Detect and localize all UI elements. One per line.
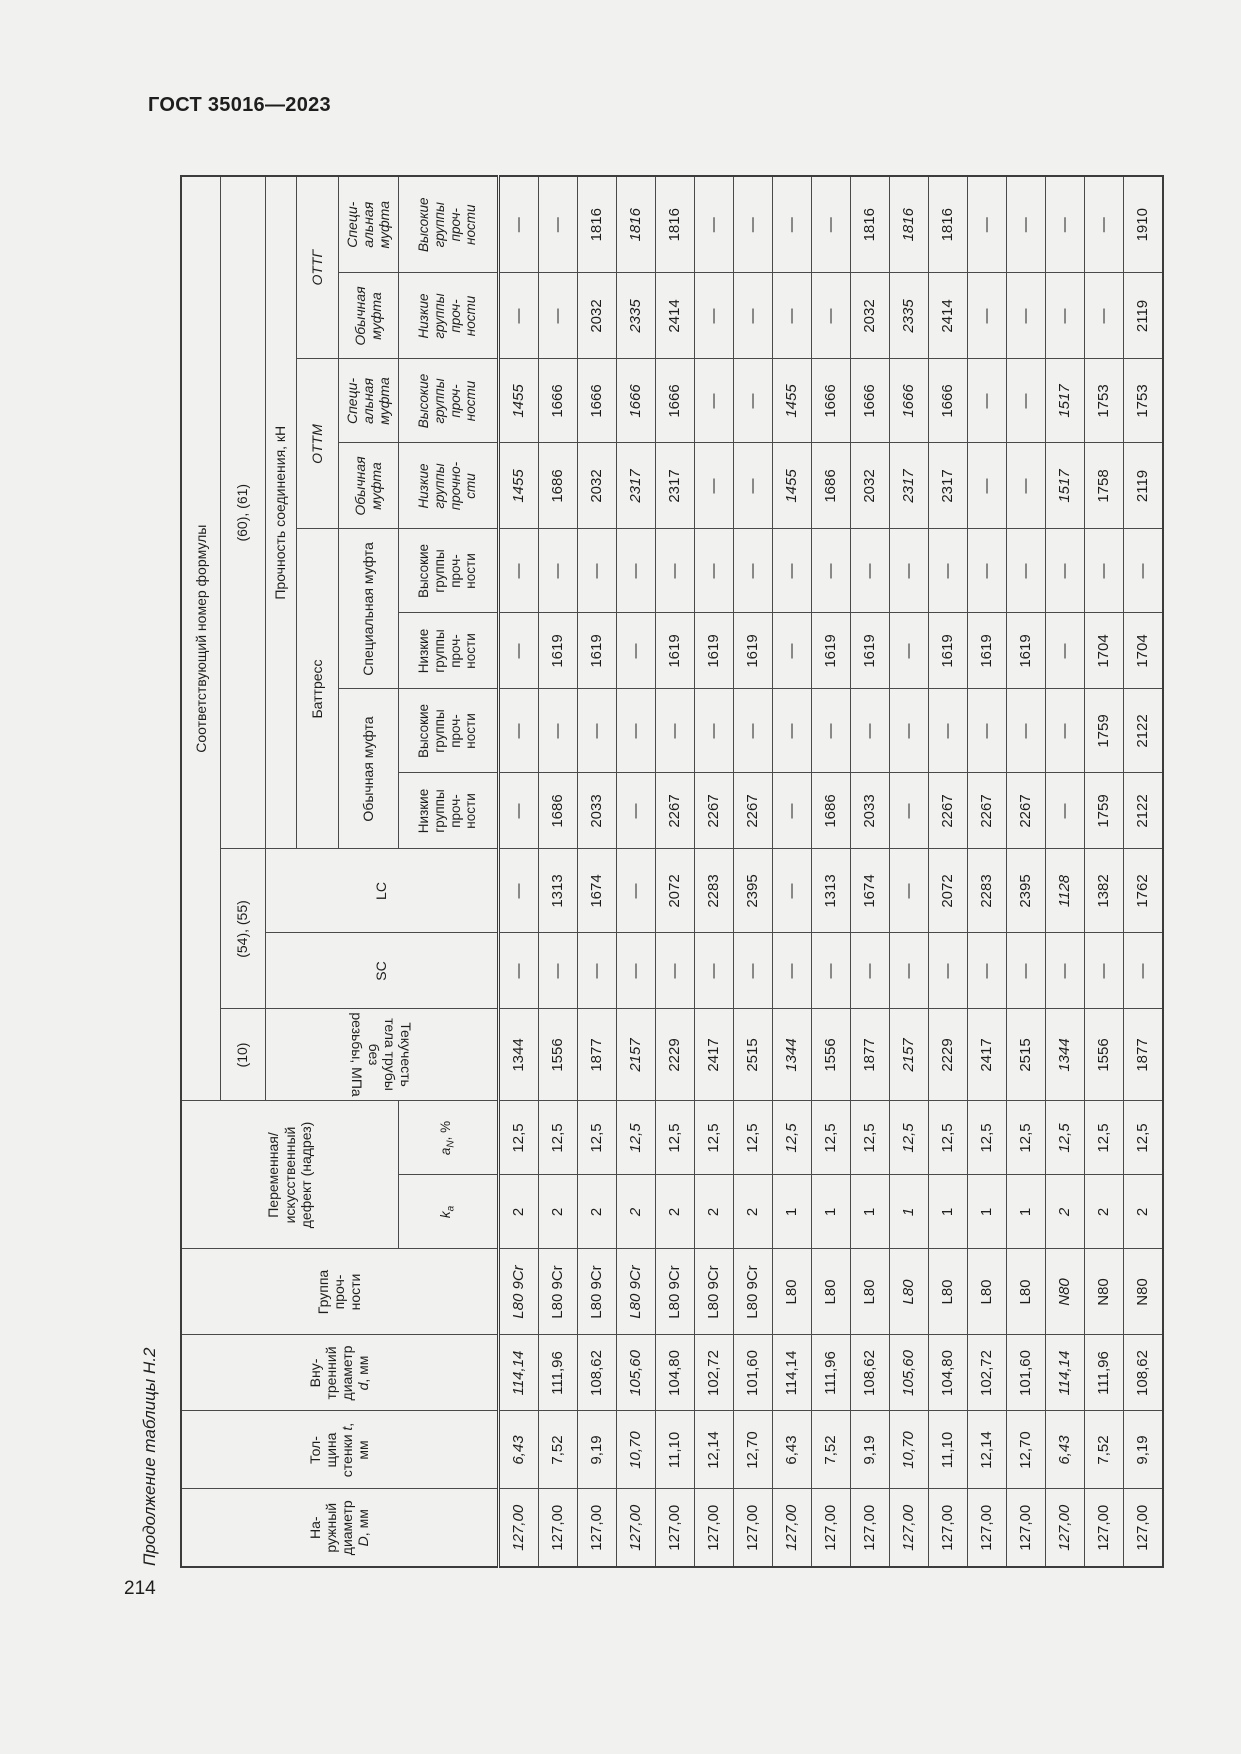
cell-buttress-special-low: 1619: [694, 613, 733, 689]
cell-lc: —: [889, 849, 928, 933]
group-header-ottm-special-coupling: Специ- альная муфта: [338, 359, 398, 443]
cell-strength-grade: N80: [1045, 1249, 1084, 1335]
cell-buttress-usual-low: —: [498, 773, 538, 849]
cell-lc: 1674: [850, 849, 889, 933]
cell-buttress-usual-low: 2122: [1123, 773, 1163, 849]
cell-buttress-usual-low: 2033: [850, 773, 889, 849]
cell-ka: 2: [616, 1175, 655, 1249]
cell-ka: 1: [772, 1175, 811, 1249]
cell-lc: 1382: [1084, 849, 1123, 933]
table-caption: Продолжение таблицы Н.2: [140, 177, 167, 1568]
cell-outer-diameter: 127,00: [733, 1489, 772, 1567]
table-row: 127,009,19108,62L80 9Cr212,51877—1674203…: [577, 176, 616, 1567]
cell-ottg-special: —: [733, 176, 772, 273]
table-row: 127,0011,10104,80L80 9Cr212,52229—207222…: [655, 176, 694, 1567]
cell-ottm-special: 1666: [811, 359, 850, 443]
group-header-defect: Переменная/ искусственный дефект (надрез…: [181, 1101, 398, 1249]
cell-buttress-usual-high: —: [655, 689, 694, 773]
cell-an: 12,5: [694, 1101, 733, 1175]
cell-wall-thickness: 11,10: [655, 1411, 694, 1489]
cell-ottg-usual: 2414: [928, 273, 967, 359]
cell-buttress-usual-low: 2267: [694, 773, 733, 849]
cell-lc: 1313: [538, 849, 577, 933]
cell-sc: —: [772, 933, 811, 1009]
cell-inner-diameter: 102,72: [967, 1335, 1006, 1411]
cell-ottg-special: —: [498, 176, 538, 273]
cell-strength-grade: N80: [1084, 1249, 1123, 1335]
cell-sc: —: [850, 933, 889, 1009]
cell-ottm-usual: 1758: [1084, 443, 1123, 529]
cell-wall-thickness: 12,14: [694, 1411, 733, 1489]
cell-ottm-special: 1666: [928, 359, 967, 443]
cell-inner-diameter: 114,14: [772, 1335, 811, 1411]
cell-lc: 2283: [694, 849, 733, 933]
cell-buttress-usual-low: 1686: [811, 773, 850, 849]
group-header-joint-strength: Прочность соединения, кН: [265, 176, 296, 849]
cell-ka: 2: [733, 1175, 772, 1249]
cell-buttress-usual-high: —: [577, 689, 616, 773]
cell-an: 12,5: [811, 1101, 850, 1175]
cell-buttress-special-low: —: [498, 613, 538, 689]
cell-an: 12,5: [850, 1101, 889, 1175]
cell-buttress-usual-high: —: [928, 689, 967, 773]
cell-wall-thickness: 12,14: [967, 1411, 1006, 1489]
cell-ottm-special: —: [967, 359, 1006, 443]
cell-pipe-body-yield: 1877: [1123, 1009, 1163, 1101]
cell-strength-grade: L80: [967, 1249, 1006, 1335]
cell-buttress-special-low: —: [1045, 613, 1084, 689]
cell-an: 12,5: [772, 1101, 811, 1175]
cell-lc: 1128: [1045, 849, 1084, 933]
cell-strength-grade: L80 9Cr: [577, 1249, 616, 1335]
cell-buttress-special-high: —: [733, 529, 772, 613]
col-header-buttress-usual-high: Высокие группы проч- ности: [398, 689, 498, 773]
cell-sc: —: [694, 933, 733, 1009]
cell-outer-diameter: 127,00: [1123, 1489, 1163, 1567]
table-row: 127,007,52111,96L80112,51556—13131686—16…: [811, 176, 850, 1567]
cell-ottm-usual: —: [733, 443, 772, 529]
cell-wall-thickness: 6,43: [498, 1411, 538, 1489]
cell-outer-diameter: 127,00: [655, 1489, 694, 1567]
cell-pipe-body-yield: 1344: [1045, 1009, 1084, 1101]
cell-ka: 2: [655, 1175, 694, 1249]
cell-ottg-usual: 2414: [655, 273, 694, 359]
cell-buttress-usual-high: —: [772, 689, 811, 773]
cell-buttress-usual-low: —: [772, 773, 811, 849]
table-row: 127,0011,10104,80L80112,52229—20722267—1…: [928, 176, 967, 1567]
cell-buttress-usual-high: 2122: [1123, 689, 1163, 773]
cell-ottm-usual: 1455: [498, 443, 538, 529]
cell-wall-thickness: 7,52: [1084, 1411, 1123, 1489]
cell-ottg-usual: 2119: [1123, 273, 1163, 359]
group-header-ottg: ОТТГ: [296, 176, 338, 359]
page-number: 214: [124, 1578, 156, 1600]
cell-wall-thickness: 6,43: [1045, 1411, 1084, 1489]
cell-lc: 2395: [733, 849, 772, 933]
cell-outer-diameter: 127,00: [616, 1489, 655, 1567]
cell-buttress-usual-low: 1759: [1084, 773, 1123, 849]
cell-ka: 2: [498, 1175, 538, 1249]
cell-strength-grade: L80: [850, 1249, 889, 1335]
cell-ottg-special: 1816: [616, 176, 655, 273]
cell-inner-diameter: 108,62: [577, 1335, 616, 1411]
cell-ottg-usual: 2335: [889, 273, 928, 359]
cell-inner-diameter: 111,96: [1084, 1335, 1123, 1411]
cell-ottm-usual: 2317: [655, 443, 694, 529]
cell-strength-grade: L80: [889, 1249, 928, 1335]
cell-ottg-usual: —: [733, 273, 772, 359]
cell-lc: 2072: [928, 849, 967, 933]
cell-lc: 1313: [811, 849, 850, 933]
col-header-ottm-usual-low: Низкие группы прочно- сти: [398, 443, 498, 529]
cell-sc: —: [538, 933, 577, 1009]
cell-sc: —: [733, 933, 772, 1009]
cell-wall-thickness: 9,19: [1123, 1411, 1163, 1489]
cell-pipe-body-yield: 2417: [694, 1009, 733, 1101]
cell-strength-grade: L80 9Cr: [538, 1249, 577, 1335]
cell-buttress-special-low: 1619: [811, 613, 850, 689]
cell-inner-diameter: 102,72: [694, 1335, 733, 1411]
cell-sc: —: [889, 933, 928, 1009]
cell-sc: —: [498, 933, 538, 1009]
cell-strength-grade: L80: [1006, 1249, 1045, 1335]
cell-pipe-body-yield: 2229: [655, 1009, 694, 1101]
cell-buttress-usual-low: 2267: [967, 773, 1006, 849]
cell-ka: 2: [577, 1175, 616, 1249]
cell-ottm-special: 1753: [1084, 359, 1123, 443]
cell-ottm-usual: 1686: [811, 443, 850, 529]
cell-ottm-special: 1455: [498, 359, 538, 443]
table-row: 127,006,43114,14L80112,51344——————145514…: [772, 176, 811, 1567]
cell-strength-grade: L80 9Cr: [694, 1249, 733, 1335]
cell-ka: 1: [1006, 1175, 1045, 1249]
cell-buttress-usual-high: —: [616, 689, 655, 773]
cell-buttress-usual-high: —: [694, 689, 733, 773]
cell-ottm-usual: 2119: [1123, 443, 1163, 529]
group-header-ottm-usual-coupling: Обычная муфта: [338, 443, 398, 529]
cell-outer-diameter: 127,00: [772, 1489, 811, 1567]
col-header-lc: LC: [265, 849, 498, 933]
standard-number: ГОСТ 35016—2023: [148, 94, 331, 117]
cell-buttress-special-high: —: [811, 529, 850, 613]
col-header-buttress-usual-low: Низкие группы проч- ности: [398, 773, 498, 849]
cell-ottm-usual: 2317: [616, 443, 655, 529]
cell-inner-diameter: 104,80: [928, 1335, 967, 1411]
cell-inner-diameter: 101,60: [733, 1335, 772, 1411]
cell-ottg-special: —: [811, 176, 850, 273]
cell-buttress-special-low: —: [889, 613, 928, 689]
cell-buttress-special-high: —: [772, 529, 811, 613]
cell-strength-grade: N80: [1123, 1249, 1163, 1335]
cell-ottg-special: 1816: [889, 176, 928, 273]
cell-sc: —: [1084, 933, 1123, 1009]
cell-ottm-special: 1666: [616, 359, 655, 443]
cell-buttress-usual-low: 2033: [577, 773, 616, 849]
cell-wall-thickness: 10,70: [616, 1411, 655, 1489]
cell-inner-diameter: 101,60: [1006, 1335, 1045, 1411]
cell-ottg-special: —: [772, 176, 811, 273]
cell-pipe-body-yield: 2417: [967, 1009, 1006, 1101]
cell-ka: 1: [928, 1175, 967, 1249]
cell-buttress-special-high: —: [889, 529, 928, 613]
cell-ottg-special: —: [694, 176, 733, 273]
cell-pipe-body-yield: 1344: [498, 1009, 538, 1101]
col-header-an: aN, %: [398, 1101, 498, 1175]
formula-54-55: (54), (55): [220, 849, 265, 1009]
cell-buttress-special-high: —: [538, 529, 577, 613]
cell-buttress-special-low: 1619: [577, 613, 616, 689]
cell-strength-grade: L80 9Cr: [498, 1249, 538, 1335]
cell-ottg-usual: —: [967, 273, 1006, 359]
col-header-buttress-special-high: Высокие группы проч- ности: [398, 529, 498, 613]
cell-ka: 2: [694, 1175, 733, 1249]
cell-wall-thickness: 12,70: [733, 1411, 772, 1489]
cell-lc: 2283: [967, 849, 1006, 933]
cell-buttress-usual-high: —: [538, 689, 577, 773]
cell-lc: —: [498, 849, 538, 933]
cell-buttress-usual-high: —: [498, 689, 538, 773]
cell-ottm-usual: —: [1006, 443, 1045, 529]
cell-an: 12,5: [498, 1101, 538, 1175]
cell-buttress-special-low: 1619: [928, 613, 967, 689]
cell-ottg-usual: 2335: [616, 273, 655, 359]
cell-inner-diameter: 105,60: [616, 1335, 655, 1411]
cell-ottg-special: —: [1084, 176, 1123, 273]
cell-strength-grade: L80 9Cr: [616, 1249, 655, 1335]
cell-an: 12,5: [577, 1101, 616, 1175]
cell-ka: 2: [1123, 1175, 1163, 1249]
formula-60-61: (60), (61): [220, 176, 265, 849]
cell-buttress-special-high: —: [1006, 529, 1045, 613]
cell-buttress-special-high: —: [655, 529, 694, 613]
cell-ottm-special: 1666: [577, 359, 616, 443]
cell-ka: 1: [850, 1175, 889, 1249]
cell-wall-thickness: 9,19: [850, 1411, 889, 1489]
cell-buttress-special-high: —: [928, 529, 967, 613]
cell-lc: —: [772, 849, 811, 933]
cell-outer-diameter: 127,00: [498, 1489, 538, 1567]
cell-strength-grade: L80: [772, 1249, 811, 1335]
cell-buttress-special-high: —: [498, 529, 538, 613]
cell-an: 12,5: [1084, 1101, 1123, 1175]
table-row: 127,007,52111,96L80 9Cr212,51556—1313168…: [538, 176, 577, 1567]
cell-ottm-special: —: [694, 359, 733, 443]
cell-ottg-usual: —: [772, 273, 811, 359]
cell-buttress-special-high: —: [577, 529, 616, 613]
group-header-ottg-usual-coupling: Обычная муфта: [338, 273, 398, 359]
cell-ottg-special: —: [1006, 176, 1045, 273]
cell-outer-diameter: 127,00: [967, 1489, 1006, 1567]
cell-ottg-special: —: [967, 176, 1006, 273]
group-header-buttress-special-coupling: Специальная муфта: [338, 529, 398, 689]
cell-ottg-usual: —: [1084, 273, 1123, 359]
cell-outer-diameter: 127,00: [928, 1489, 967, 1567]
table-body: 127,006,43114,14L80 9Cr212,51344——————14…: [498, 176, 1163, 1567]
cell-pipe-body-yield: 1877: [850, 1009, 889, 1101]
cell-buttress-special-high: —: [694, 529, 733, 613]
formula-10: (10): [220, 1009, 265, 1101]
col-header-strength-grade: Группа проч- ности: [181, 1249, 498, 1335]
cell-inner-diameter: 108,62: [850, 1335, 889, 1411]
cell-sc: —: [967, 933, 1006, 1009]
cell-ka: 2: [538, 1175, 577, 1249]
cell-buttress-special-low: 1619: [655, 613, 694, 689]
cell-ottm-usual: —: [967, 443, 1006, 529]
cell-pipe-body-yield: 2515: [733, 1009, 772, 1101]
cell-strength-grade: L80: [811, 1249, 850, 1335]
table-normal-orientation: Продолжение таблицы Н.2 На- ружный диаме…: [140, 177, 1153, 1568]
cell-ottg-usual: —: [1006, 273, 1045, 359]
cell-ottg-usual: 2032: [577, 273, 616, 359]
cell-inner-diameter: 114,14: [1045, 1335, 1084, 1411]
group-header-ottg-special-coupling: Специ- альная муфта: [338, 176, 398, 273]
cell-strength-grade: L80 9Cr: [655, 1249, 694, 1335]
table-header: На- ружный диаметр D, мм Тол- щина стенк…: [181, 176, 498, 1567]
cell-ottg-special: —: [538, 176, 577, 273]
cell-inner-diameter: 111,96: [811, 1335, 850, 1411]
cell-buttress-usual-high: —: [1045, 689, 1084, 773]
cell-wall-thickness: 11,10: [928, 1411, 967, 1489]
col-header-outer-diameter: На- ружный диаметр D, мм: [181, 1489, 498, 1567]
cell-buttress-usual-high: —: [811, 689, 850, 773]
cell-buttress-special-low: 1704: [1123, 613, 1163, 689]
cell-outer-diameter: 127,00: [694, 1489, 733, 1567]
cell-buttress-special-high: —: [1084, 529, 1123, 613]
cell-wall-thickness: 9,19: [577, 1411, 616, 1489]
cell-buttress-usual-high: —: [889, 689, 928, 773]
col-header-ottg-special-high: Высокие группы проч- ности: [398, 176, 498, 273]
cell-pipe-body-yield: 1556: [811, 1009, 850, 1101]
cell-pipe-body-yield: 1877: [577, 1009, 616, 1101]
cell-an: 12,5: [1123, 1101, 1163, 1175]
rotated-table-area: Продолжение таблицы Н.2 На- ружный диаме…: [140, 177, 1153, 1568]
cell-ottg-usual: —: [498, 273, 538, 359]
cell-wall-thickness: 7,52: [811, 1411, 850, 1489]
cell-buttress-special-low: —: [772, 613, 811, 689]
cell-wall-thickness: 7,52: [538, 1411, 577, 1489]
cell-buttress-special-low: 1704: [1084, 613, 1123, 689]
cell-pipe-body-yield: 2229: [928, 1009, 967, 1101]
cell-inner-diameter: 114,14: [498, 1335, 538, 1411]
cell-outer-diameter: 127,00: [577, 1489, 616, 1567]
cell-an: 12,5: [538, 1101, 577, 1175]
cell-an: 12,5: [1045, 1101, 1084, 1175]
cell-ottg-usual: —: [811, 273, 850, 359]
cell-wall-thickness: 10,70: [889, 1411, 928, 1489]
col-header-sc: SC: [265, 933, 498, 1009]
cell-buttress-special-low: 1619: [538, 613, 577, 689]
group-header-buttress-usual-coupling: Обычная муфта: [338, 689, 398, 849]
cell-ottm-usual: 2317: [889, 443, 928, 529]
table-row: 127,006,43114,14N80212,51344—1128————151…: [1045, 176, 1084, 1567]
flipped-yield-label: Текучесть тела трубы без резьбы, МПа: [349, 1009, 414, 1100]
cell-sc: —: [655, 933, 694, 1009]
cell-buttress-usual-low: 2267: [1006, 773, 1045, 849]
cell-buttress-usual-low: 2267: [655, 773, 694, 849]
cell-inner-diameter: 105,60: [889, 1335, 928, 1411]
cell-buttress-usual-low: 2267: [928, 773, 967, 849]
cell-buttress-usual-low: —: [1045, 773, 1084, 849]
cell-outer-diameter: 127,00: [1084, 1489, 1123, 1567]
cell-buttress-special-low: —: [616, 613, 655, 689]
cell-buttress-usual-low: 1686: [538, 773, 577, 849]
cell-pipe-body-yield: 1556: [538, 1009, 577, 1101]
cell-inner-diameter: 111,96: [538, 1335, 577, 1411]
cell-pipe-body-yield: 1344: [772, 1009, 811, 1101]
cell-buttress-usual-low: —: [889, 773, 928, 849]
cell-pipe-body-yield: 2157: [616, 1009, 655, 1101]
col-header-ottm-special-high: Высокие группы проч- ности: [398, 359, 498, 443]
cell-strength-grade: L80: [928, 1249, 967, 1335]
cell-ottm-usual: 1686: [538, 443, 577, 529]
cell-ottg-usual: —: [694, 273, 733, 359]
cell-ottg-usual: —: [538, 273, 577, 359]
table-row: 127,009,19108,62L80112,51877—16742033—16…: [850, 176, 889, 1567]
cell-wall-thickness: 12,70: [1006, 1411, 1045, 1489]
cell-inner-diameter: 108,62: [1123, 1335, 1163, 1411]
cell-strength-grade: L80 9Cr: [733, 1249, 772, 1335]
cell-ottm-special: 1666: [655, 359, 694, 443]
cell-lc: 2072: [655, 849, 694, 933]
group-header-buttress: Баттресс: [296, 529, 338, 849]
cell-ottm-usual: 1455: [772, 443, 811, 529]
cell-buttress-special-low: 1619: [850, 613, 889, 689]
cell-ka: 1: [967, 1175, 1006, 1249]
cell-buttress-usual-high: —: [1006, 689, 1045, 773]
cell-ottg-usual: 2032: [850, 273, 889, 359]
cell-sc: —: [928, 933, 967, 1009]
col-header-wall-thickness: Тол- щина стенки t, мм: [181, 1411, 498, 1489]
table-row: 127,0012,70101,60L80112,52515—23952267—1…: [1006, 176, 1045, 1567]
cell-ottm-usual: 2032: [850, 443, 889, 529]
cell-sc: —: [1006, 933, 1045, 1009]
group-header-ottm: ОТТМ: [296, 359, 338, 529]
cell-sc: —: [1045, 933, 1084, 1009]
cell-an: 12,5: [928, 1101, 967, 1175]
cell-buttress-usual-high: —: [967, 689, 1006, 773]
cell-ottm-usual: —: [694, 443, 733, 529]
cell-lc: 1674: [577, 849, 616, 933]
cell-buttress-special-high: —: [967, 529, 1006, 613]
col-header-inner-diameter: Вну- тренний диаметр d, мм: [181, 1335, 498, 1411]
group-header-formula-number: Соответствующий номер формулы: [181, 176, 220, 1101]
cell-ottm-usual: 2032: [577, 443, 616, 529]
cell-buttress-special-high: —: [616, 529, 655, 613]
cell-ottg-usual: —: [1045, 273, 1084, 359]
cell-an: 12,5: [655, 1101, 694, 1175]
cell-buttress-special-high: —: [1045, 529, 1084, 613]
cell-ottg-special: —: [1045, 176, 1084, 273]
cell-buttress-special-high: —: [1123, 529, 1163, 613]
cell-ottm-special: —: [1006, 359, 1045, 443]
table-row: 127,0010,70105,60L80 9Cr212,52157——————2…: [616, 176, 655, 1567]
cell-an: 12,5: [733, 1101, 772, 1175]
cell-outer-diameter: 127,00: [811, 1489, 850, 1567]
table-row: 127,0012,14102,72L80112,52417—22832267—1…: [967, 176, 1006, 1567]
cell-ottg-special: 1816: [928, 176, 967, 273]
cell-buttress-usual-high: 1759: [1084, 689, 1123, 773]
cell-lc: 2395: [1006, 849, 1045, 933]
cell-buttress-usual-high: —: [850, 689, 889, 773]
cell-pipe-body-yield: 2515: [1006, 1009, 1045, 1101]
document-page: ГОСТ 35016—2023 Продолжение таблицы Н.2 …: [0, 0, 1241, 1754]
cell-buttress-special-low: 1619: [733, 613, 772, 689]
cell-buttress-special-low: 1619: [967, 613, 1006, 689]
col-header-buttress-special-low: Низкие группы проч- ности: [398, 613, 498, 689]
table-row: 127,009,19108,62N80212,51877—17622122212…: [1123, 176, 1163, 1567]
cell-an: 12,5: [889, 1101, 928, 1175]
cell-ottm-usual: 1517: [1045, 443, 1084, 529]
